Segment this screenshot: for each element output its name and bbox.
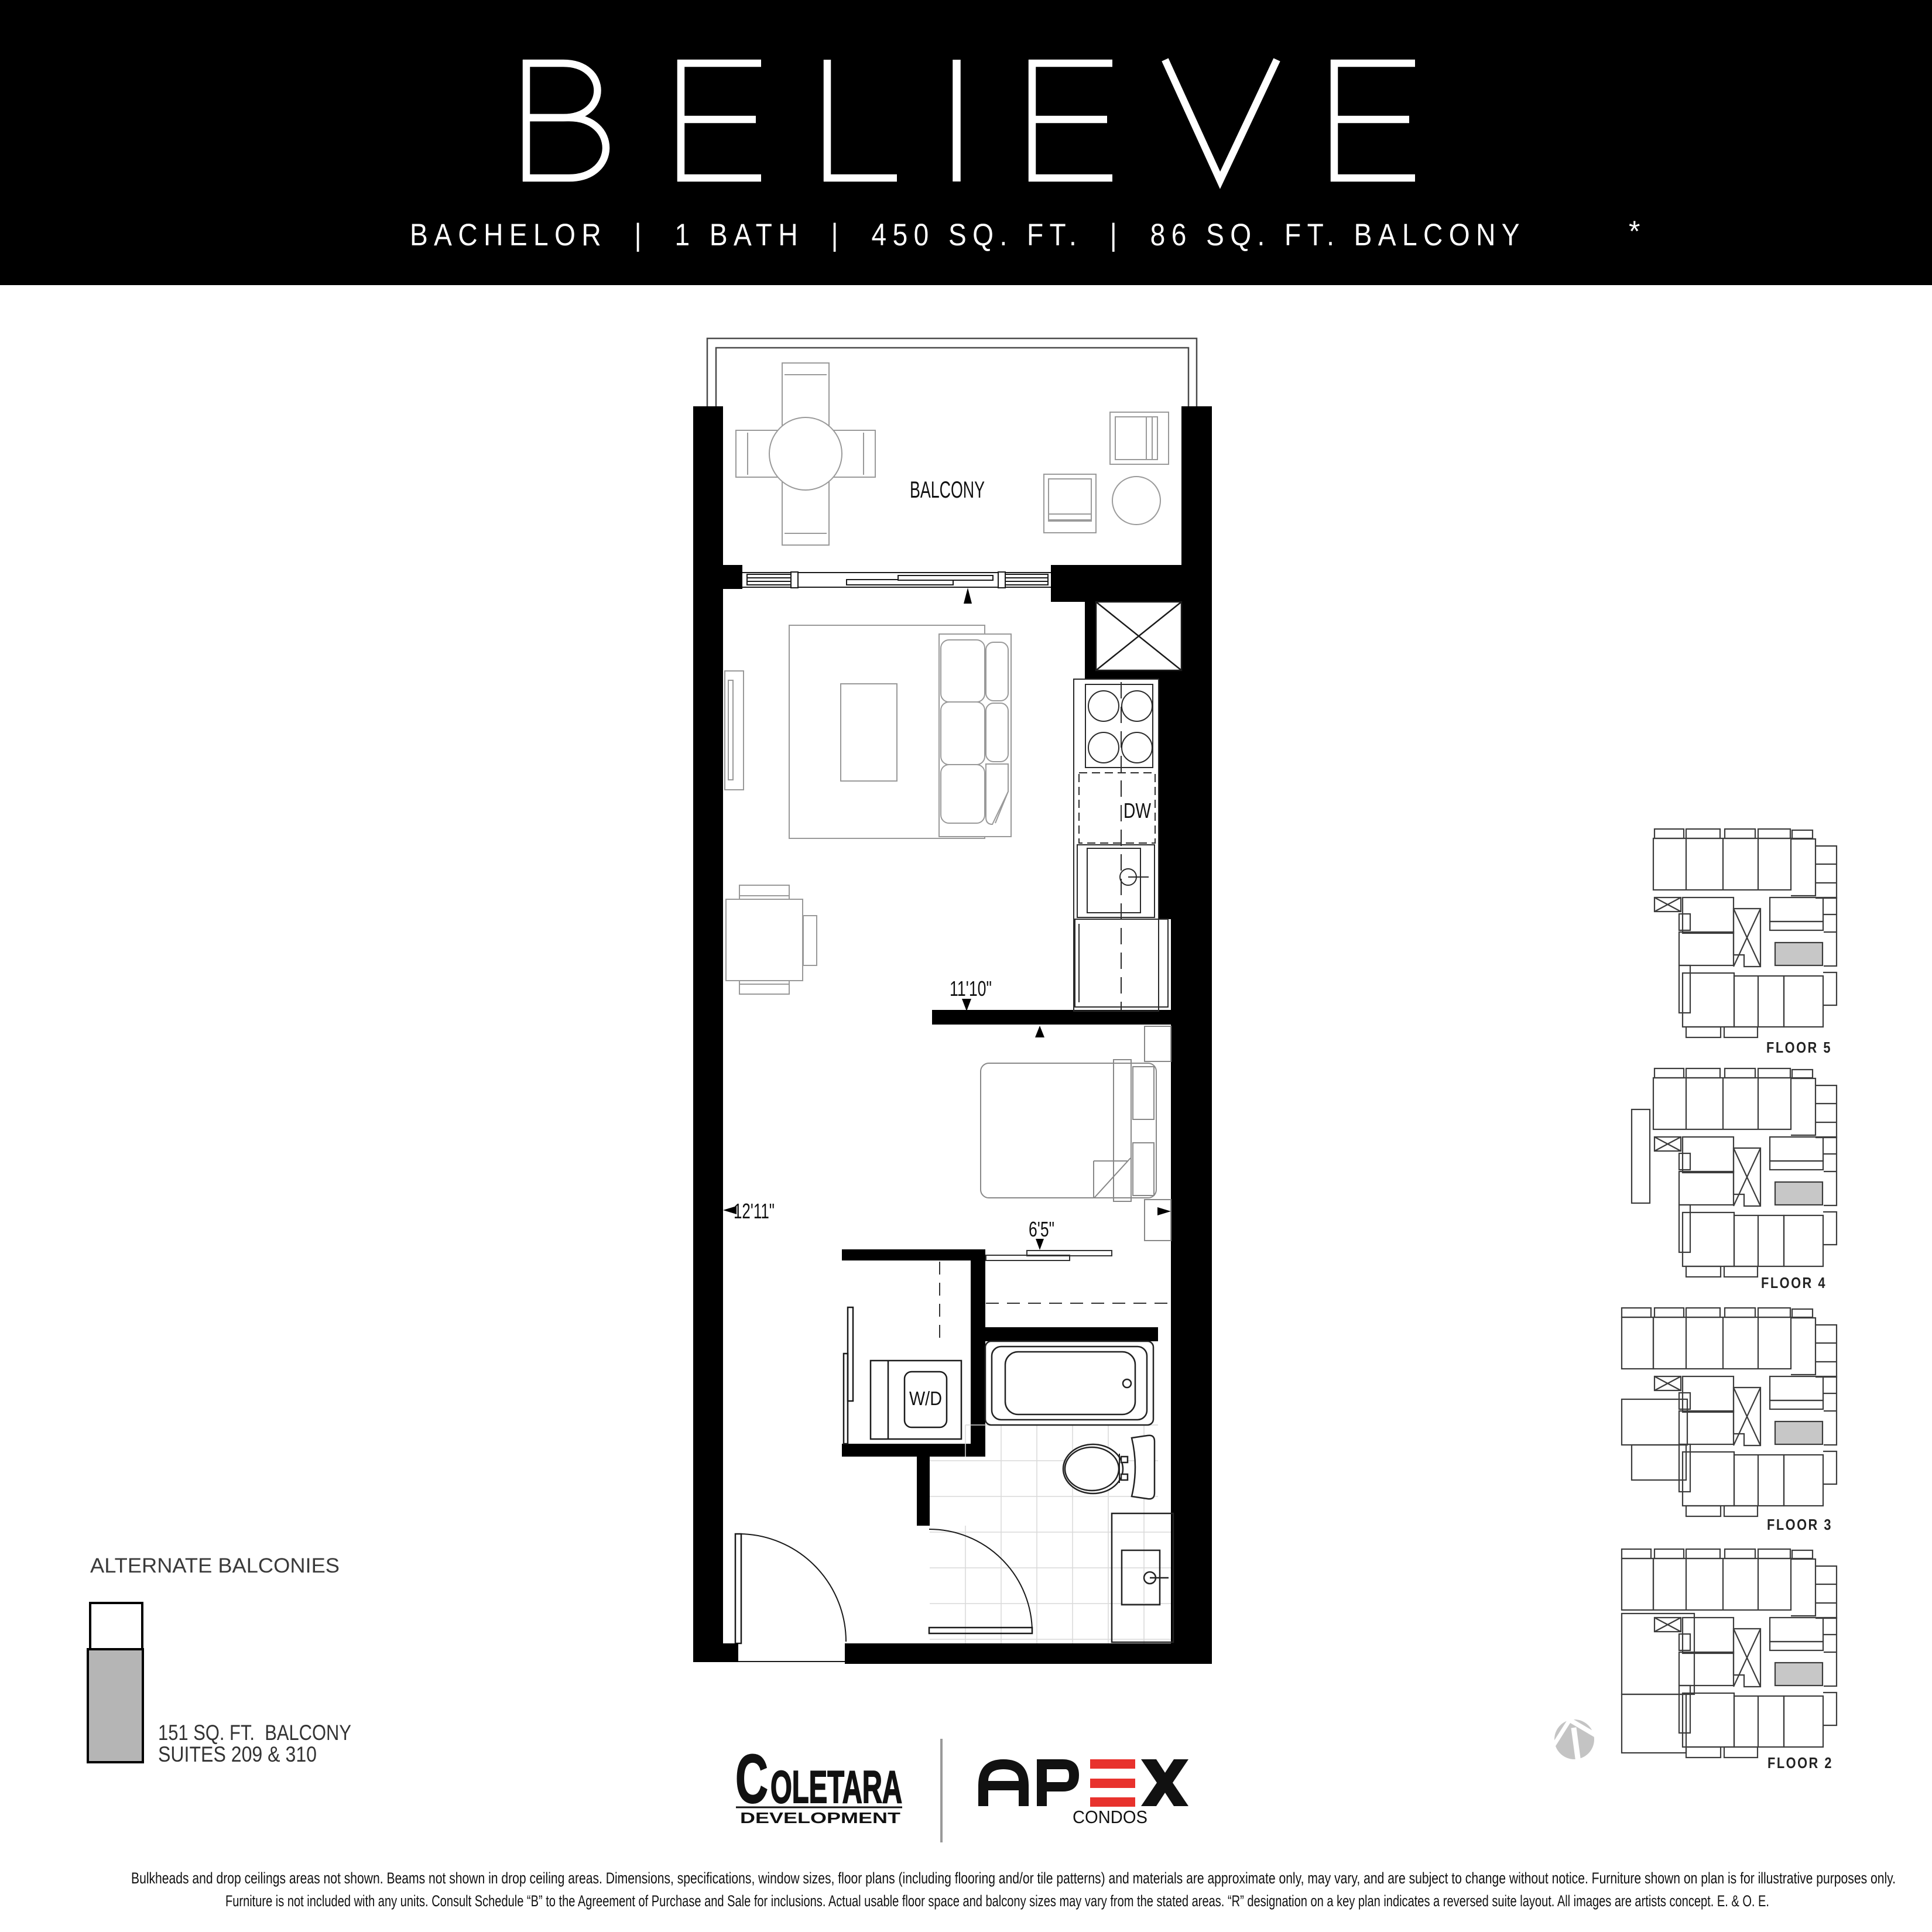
svg-text:*: *	[1629, 215, 1640, 248]
svg-text:OLETARA: OLETARA	[770, 1761, 902, 1813]
svg-text:Furniture is not included with: Furniture is not included with any units…	[225, 1892, 1769, 1910]
svg-text:ALTERNATE BALCONIES: ALTERNATE BALCONIES	[90, 1554, 340, 1577]
svg-text:BALCONY: BALCONY	[910, 477, 985, 503]
svg-text:11'10": 11'10"	[950, 977, 992, 1001]
svg-text:FLOOR 5: FLOOR 5	[1766, 1039, 1832, 1056]
svg-text:DEVELOPMENT: DEVELOPMENT	[740, 1809, 900, 1827]
svg-text:FLOOR 3: FLOOR 3	[1767, 1516, 1832, 1533]
svg-text:FLOOR 4: FLOOR 4	[1761, 1274, 1827, 1292]
svg-text:SUITES 209 & 310: SUITES 209 & 310	[158, 1742, 317, 1766]
svg-text:CONDOS: CONDOS	[1073, 1807, 1147, 1827]
svg-text:C: C	[735, 1741, 768, 1818]
svg-text:W/D: W/D	[909, 1388, 942, 1409]
svg-text:Bulkheads and drop ceilings ar: Bulkheads and drop ceilings areas not sh…	[131, 1869, 1896, 1887]
svg-text:BACHELOR | 1 BATH | 450 SQ: BACHELOR | 1 BATH | 450 SQ. FT. | 86 SQ.…	[410, 218, 1526, 252]
svg-text:6'5": 6'5"	[1029, 1217, 1054, 1241]
svg-text:DW: DW	[1123, 799, 1151, 823]
svg-text:151 SQ. FT. BALCONY: 151 SQ. FT. BALCONY	[158, 1721, 351, 1745]
svg-text:12'11": 12'11"	[734, 1199, 775, 1223]
svg-text:FLOOR 2: FLOOR 2	[1767, 1754, 1833, 1772]
